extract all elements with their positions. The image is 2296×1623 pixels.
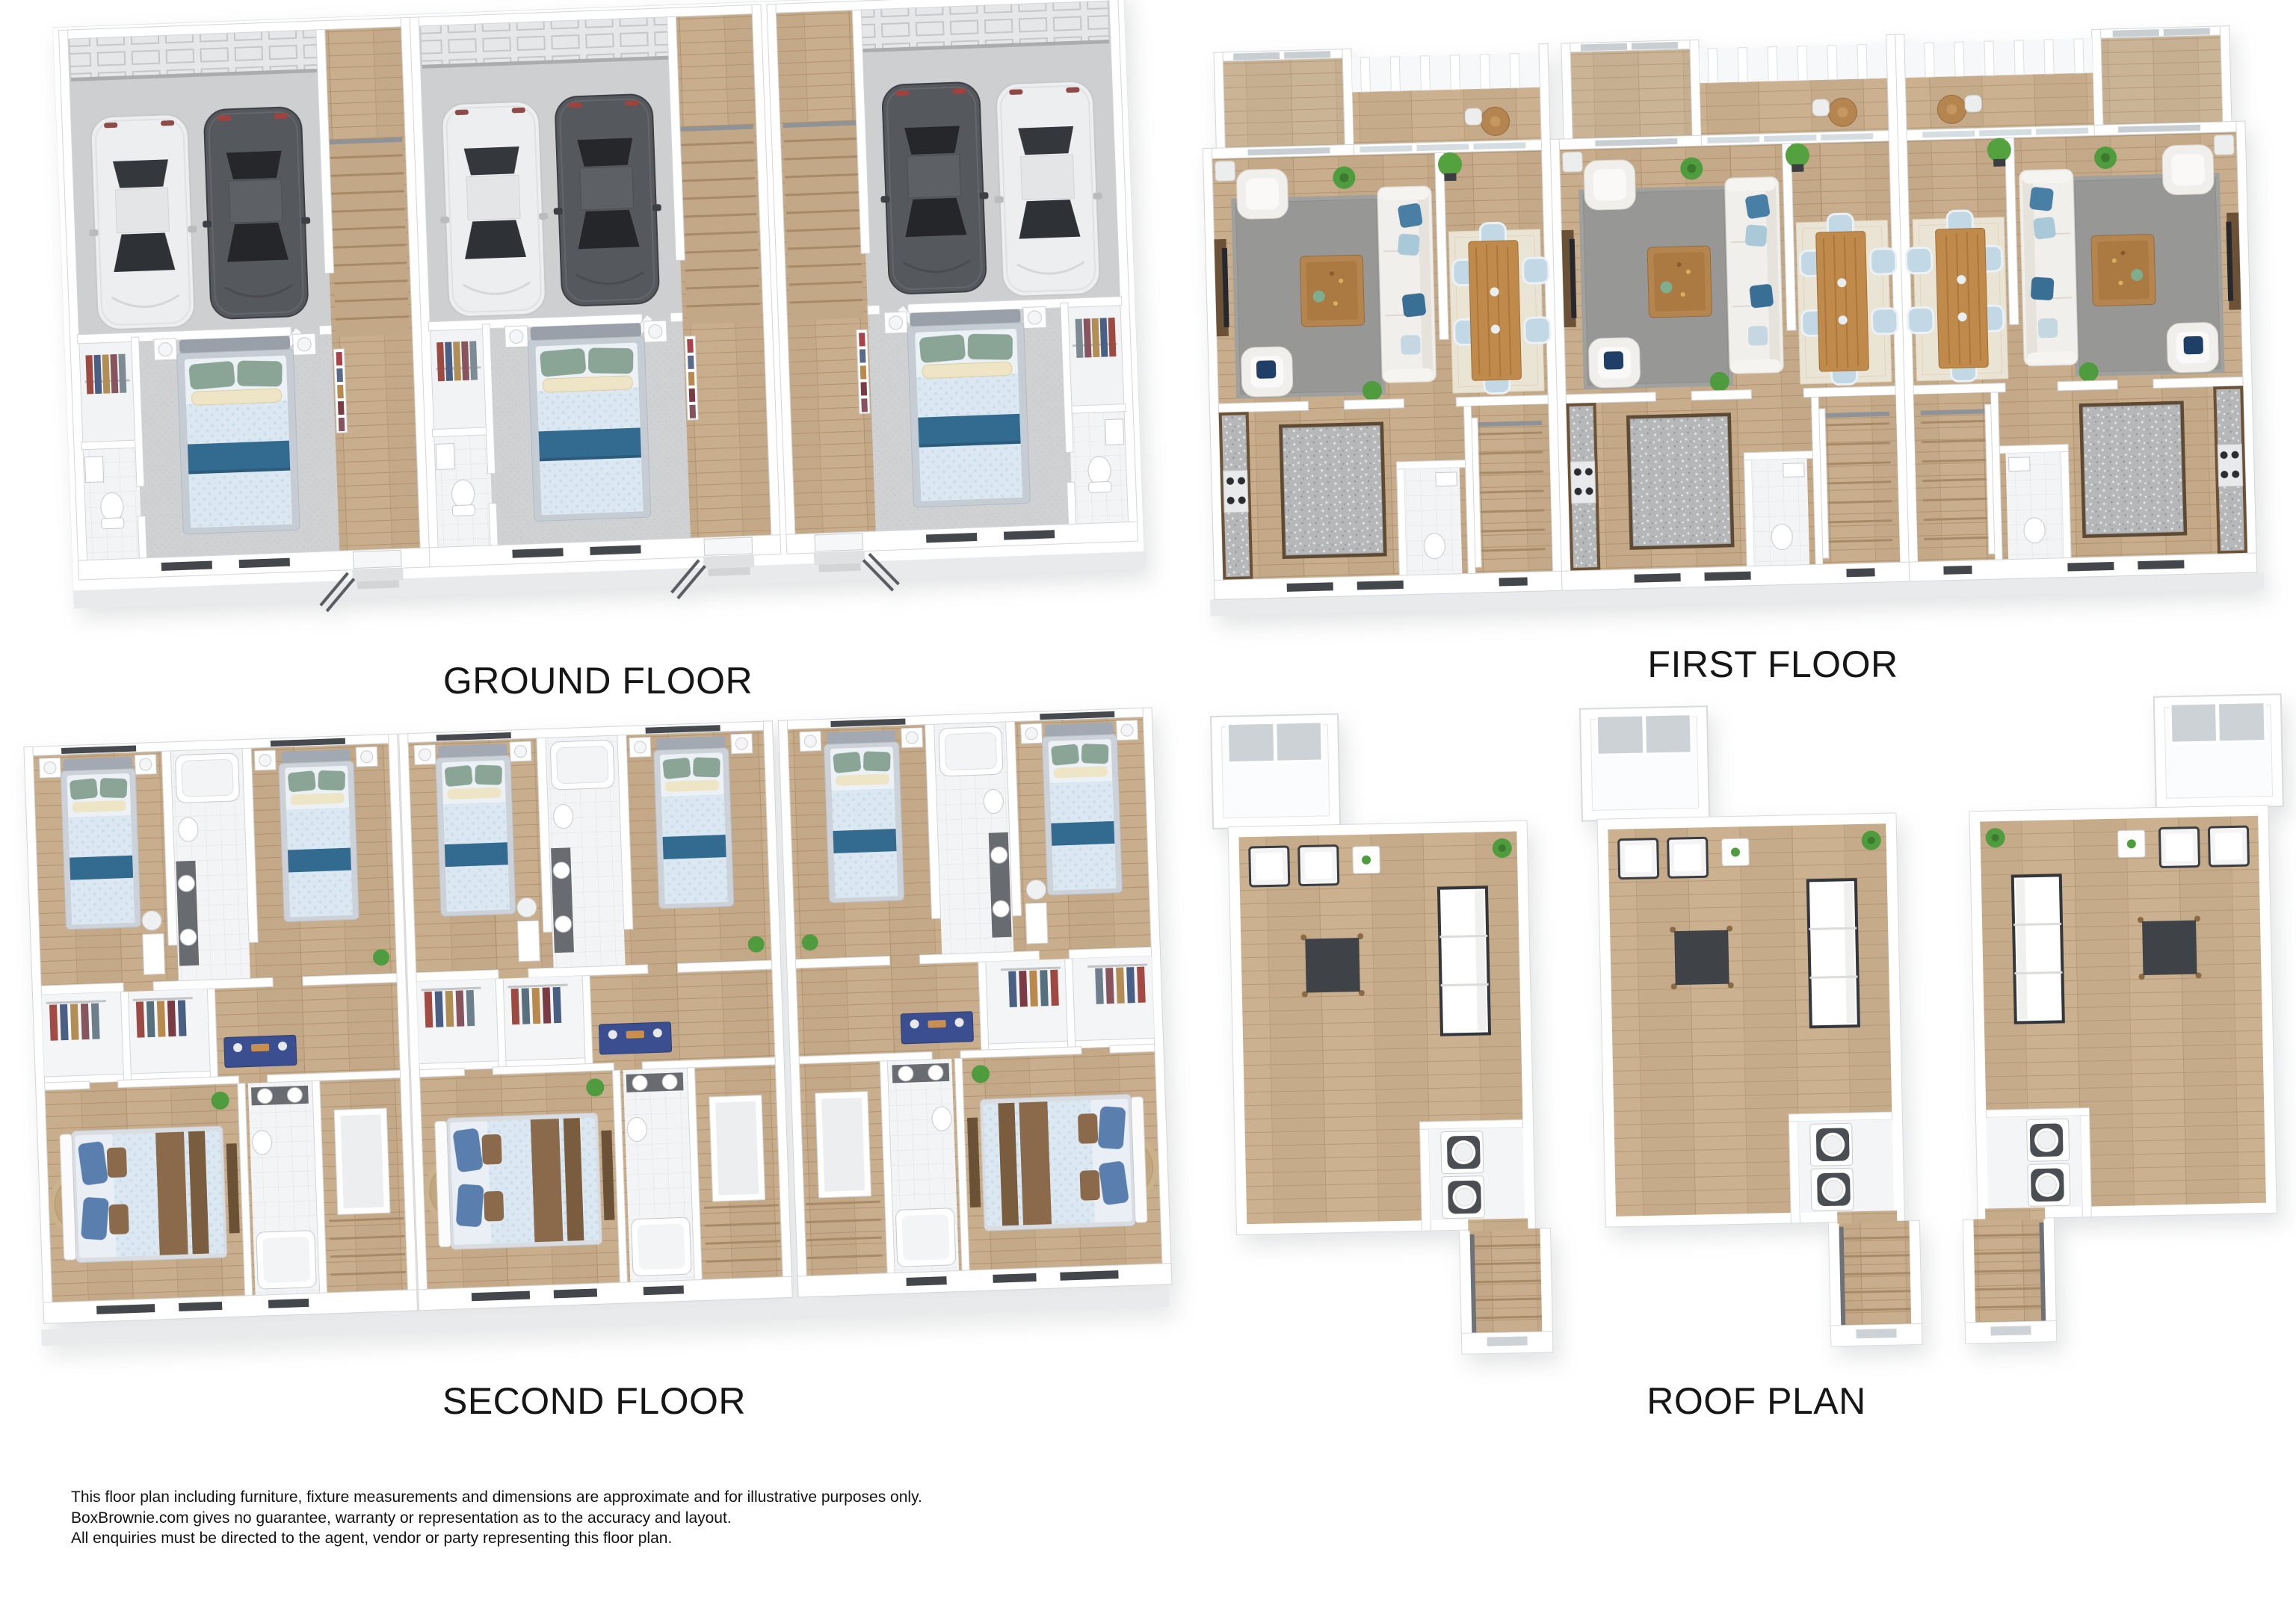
first-floor-label: FIRST FLOOR	[1647, 643, 1898, 686]
disclaimer: This floor plan including furniture, fix…	[71, 1487, 922, 1549]
roof-plan-render-wrap	[1208, 691, 2296, 1371]
roof-plan-label: ROOF PLAN	[1647, 1379, 1865, 1423]
second-floor-render	[19, 702, 1185, 1376]
first-floor-render	[1194, 22, 2282, 640]
first-floor-plan	[1194, 22, 2282, 640]
second-floor-plan	[19, 702, 1185, 1376]
disclaimer-line: This floor plan including furniture, fix…	[71, 1487, 922, 1508]
ground-floor-label: GROUND FLOOR	[443, 659, 753, 702]
disclaimer-line: All enquiries must be directed to the ag…	[71, 1528, 922, 1549]
ground-floor-render	[52, 0, 1158, 646]
second-floor-label: SECOND FLOOR	[442, 1379, 746, 1423]
disclaimer-line: BoxBrownie.com gives no guarantee, warra…	[71, 1508, 922, 1529]
ground-floor-plan	[52, 0, 1158, 646]
roof-plan-render	[1208, 691, 2296, 1371]
